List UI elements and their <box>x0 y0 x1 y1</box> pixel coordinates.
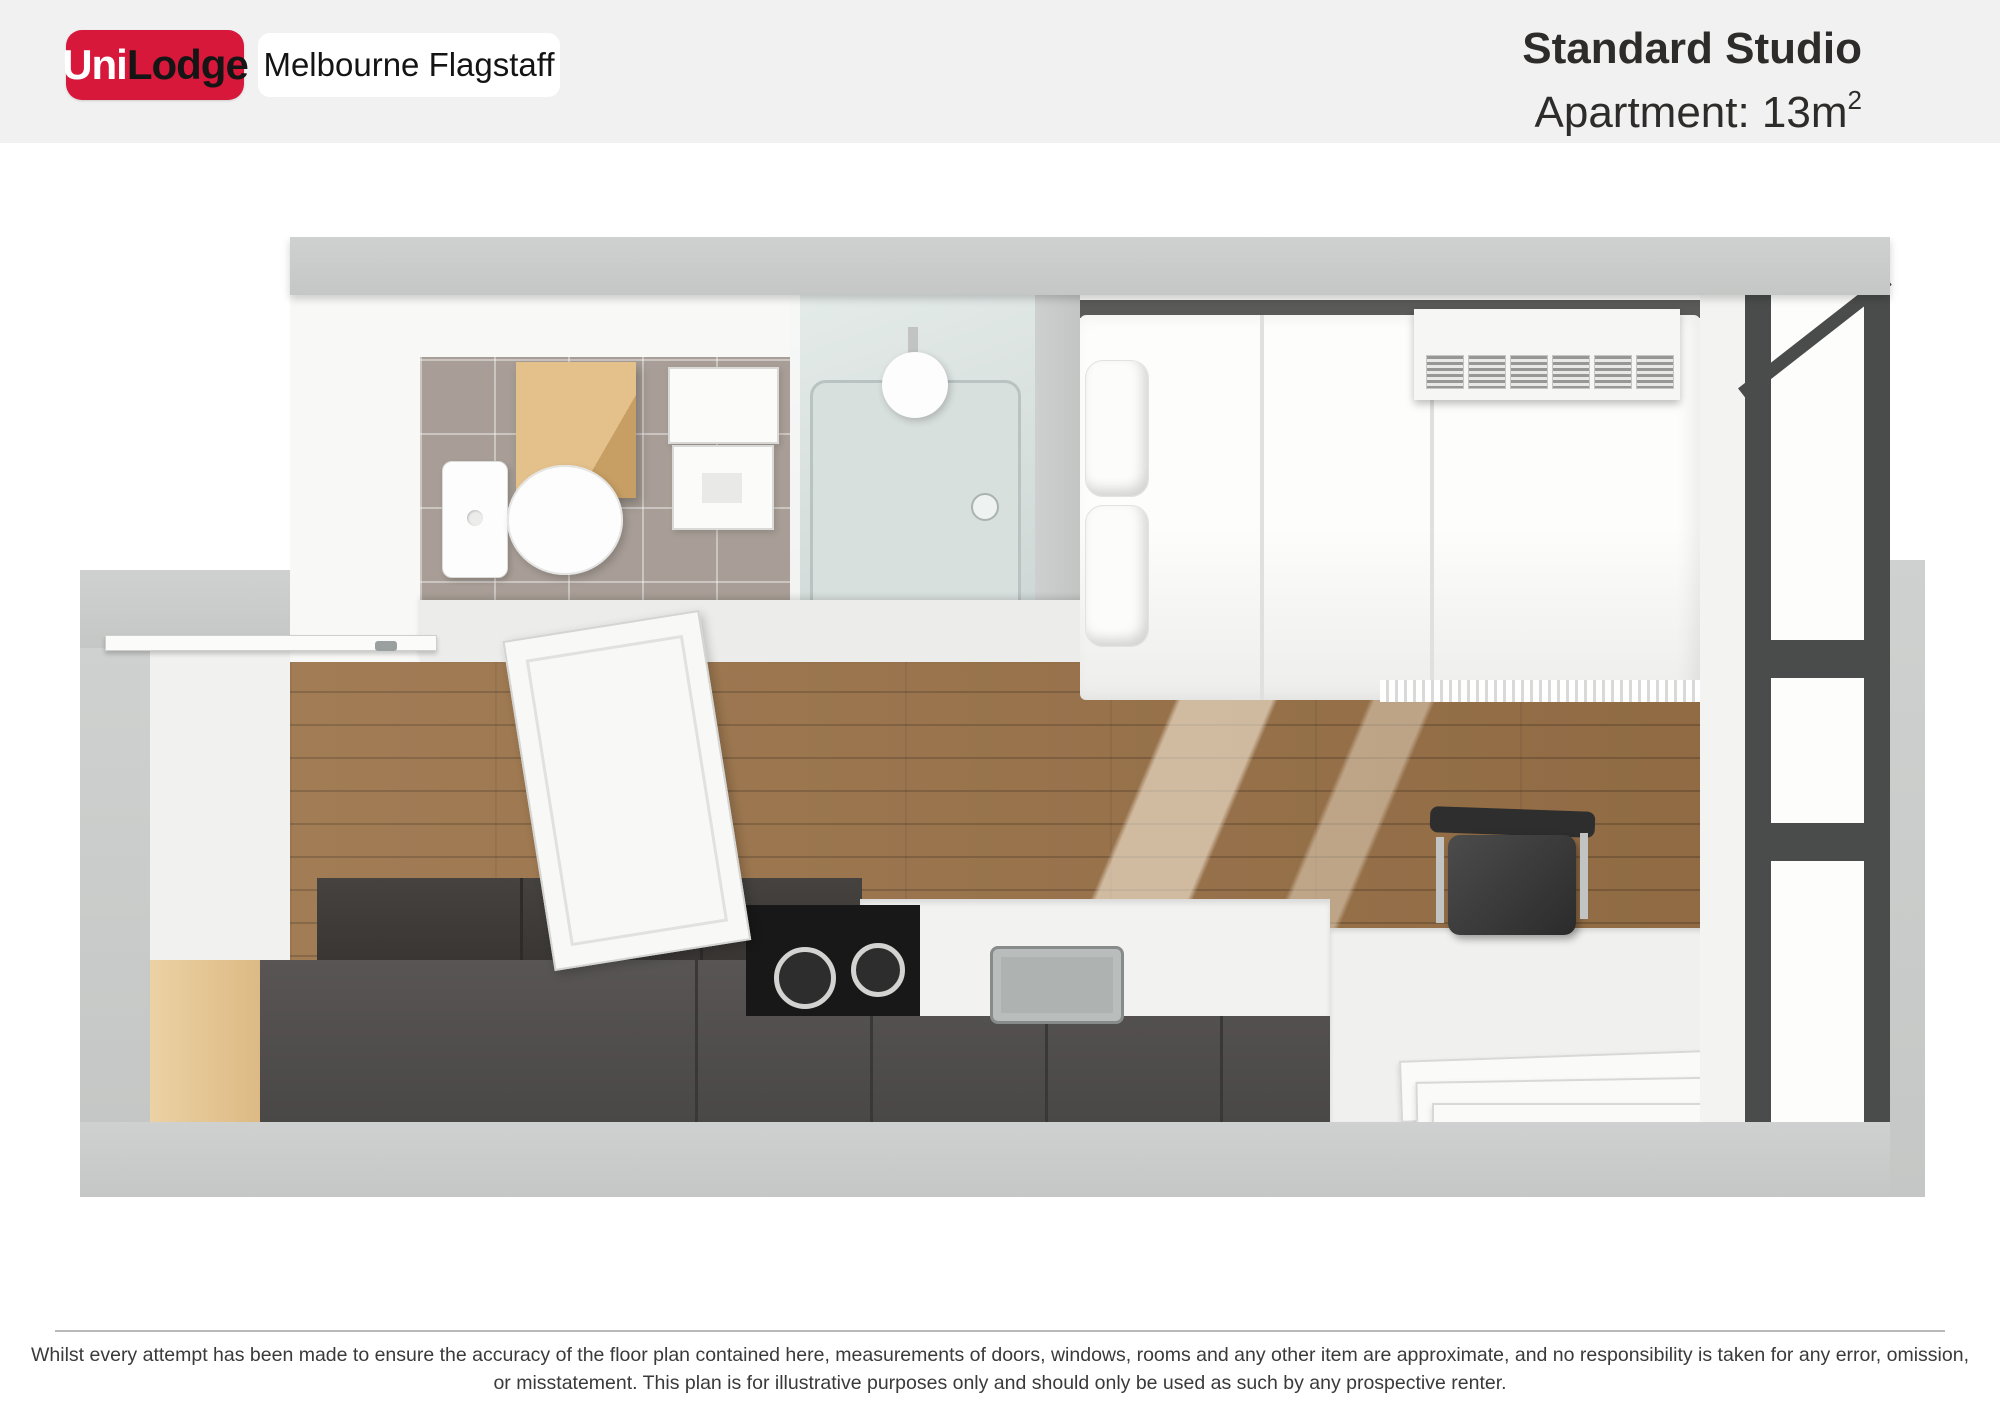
oak-end-panel <box>146 960 260 1122</box>
ac-vent-icon <box>1552 355 1590 389</box>
bedroom-side-wall <box>1700 295 1745 1122</box>
chair-arm <box>1436 837 1444 923</box>
right-outer-wall <box>1890 560 1925 1197</box>
plan-subtitle-sup: 2 <box>1848 85 1862 115</box>
ac-vent-icon <box>1594 355 1632 389</box>
bottom-wall <box>80 1122 1925 1197</box>
plan-subtitle: Apartment: 13m2 <box>1522 74 1862 139</box>
kitchen-sink <box>990 946 1124 1024</box>
air-conditioner <box>1414 309 1680 400</box>
window-transom <box>1745 640 1890 678</box>
flush-button <box>467 510 483 526</box>
ac-vent-icon <box>1510 355 1548 389</box>
ac-vent-icon <box>1468 355 1506 389</box>
shower-drain <box>971 493 999 521</box>
window-mullion <box>1745 295 1771 1122</box>
logo-lodge-text: Lodge <box>127 44 248 86</box>
plan-title: Standard Studio <box>1522 24 1862 74</box>
toilet-cistern <box>442 461 508 578</box>
floorplan-render <box>80 237 1925 1197</box>
toilet-bowl <box>507 465 623 575</box>
shower-head <box>882 352 948 418</box>
wall-basin-lower <box>672 445 774 530</box>
logo-uni-text: Uni <box>62 44 127 86</box>
plan-heading: Standard Studio Apartment: 13m2 <box>1522 24 1862 139</box>
bench-seam <box>520 878 523 960</box>
cabinet-seam <box>695 960 698 1122</box>
window-transom <box>1745 823 1890 861</box>
plan-subtitle-text: Apartment: 13m <box>1535 88 1848 137</box>
entry-floor <box>150 648 290 960</box>
door-hinge-icon <box>375 641 397 651</box>
chair-arm <box>1580 833 1588 919</box>
door-panel-moulding <box>526 635 728 946</box>
pillow-bottom <box>1085 505 1149 647</box>
throw-fringe <box>1380 680 1700 702</box>
ac-vent-icon <box>1426 355 1464 389</box>
disclaimer-line-2: or misstatement. This plan is for illust… <box>0 1372 2000 1395</box>
top-wall <box>290 237 1890 295</box>
disclaimer-line-1: Whilst every attempt has been made to en… <box>0 1344 2000 1367</box>
flyer-page: UniLodge Melbourne Flagstaff Standard St… <box>0 0 2000 1414</box>
pot-icon <box>851 943 905 997</box>
basin-bowl <box>702 473 742 503</box>
wall-basin-upper <box>668 367 779 444</box>
unilodge-logo: UniLodge <box>66 30 244 100</box>
ac-vent-icon <box>1636 355 1674 389</box>
desk-chair <box>1448 835 1576 935</box>
header-bar: UniLodge Melbourne Flagstaff Standard St… <box>0 0 2000 143</box>
footer-divider <box>55 1330 1945 1332</box>
window-outer-frame <box>1864 295 1890 1122</box>
property-name: Melbourne Flagstaff <box>263 46 554 84</box>
oven-cooktop <box>746 905 920 1016</box>
bedding-seam <box>1260 315 1264 700</box>
property-name-badge: Melbourne Flagstaff <box>258 33 560 97</box>
pillow-top <box>1085 360 1149 497</box>
left-outer-wall <box>80 648 150 1122</box>
pot-icon <box>774 947 836 1009</box>
